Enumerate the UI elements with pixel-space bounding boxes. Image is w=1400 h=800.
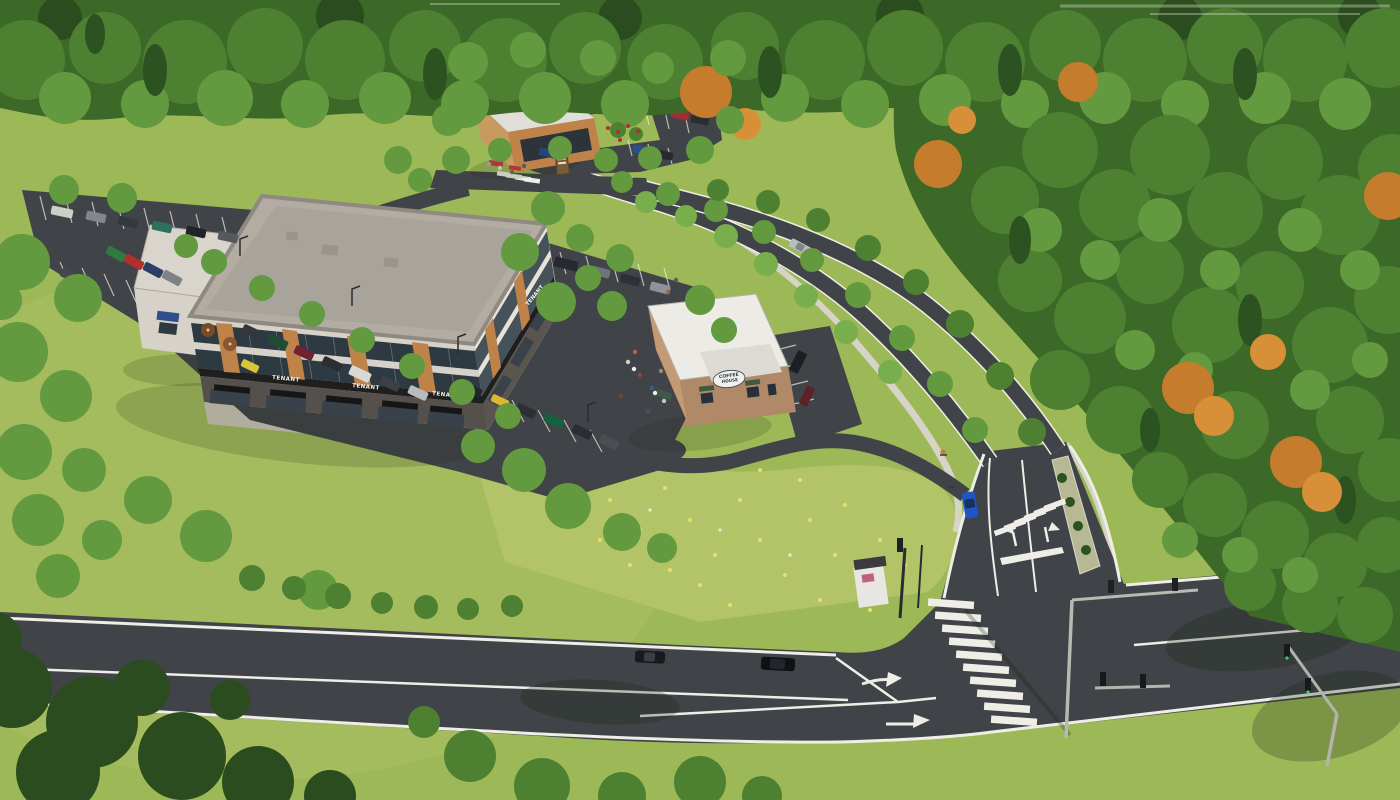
signal-head-2 bbox=[1172, 578, 1178, 591]
aerial-site-rendering: TENANT TENANT TENANT TENANT bbox=[0, 0, 1400, 800]
rendering-canvas: TENANT TENANT TENANT TENANT bbox=[0, 0, 1400, 800]
signal-head-1 bbox=[1108, 580, 1114, 593]
black-sedan bbox=[635, 650, 666, 664]
west-wing-window-1 bbox=[158, 322, 177, 335]
black-suv bbox=[761, 657, 796, 672]
signal-cabinet bbox=[853, 556, 888, 608]
main-building: TENANT TENANT TENANT TENANT bbox=[190, 196, 560, 430]
